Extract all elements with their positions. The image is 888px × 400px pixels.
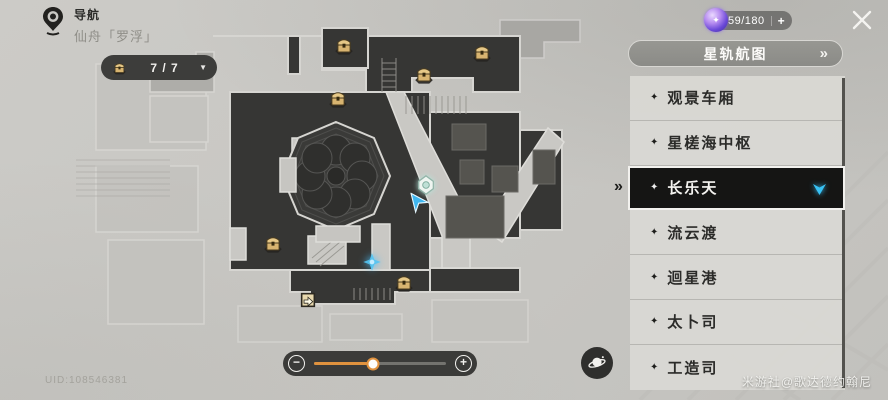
zoom-in-button[interactable]: + — [455, 355, 472, 372]
area-item-label: 太卜司 — [667, 311, 718, 332]
chevron-right-icon: » — [820, 45, 828, 62]
diamond-bullet-icon: ✦ — [650, 272, 658, 283]
selected-pointer-icon: » — [614, 178, 623, 196]
zoom-out-button[interactable]: − — [288, 355, 305, 372]
scrollbar[interactable] — [842, 78, 845, 388]
star-rail-chart-button[interactable]: 星轨航图 » — [628, 40, 843, 67]
diamond-bullet-icon: ✦ — [650, 227, 658, 238]
map-marker-chest[interactable] — [334, 35, 355, 56]
zoom-fill — [314, 362, 373, 365]
map-zoom-slider[interactable]: − + — [283, 351, 477, 376]
area-item-5[interactable]: ✦太卜司 — [630, 300, 845, 345]
chest-count: 7 / 7 — [136, 61, 193, 75]
chest-counter-dropdown[interactable]: 7 / 7 ▼ — [101, 55, 217, 80]
diamond-bullet-icon: ✦ — [650, 362, 658, 373]
trailblaze-power-value: 59/180 — [728, 15, 765, 27]
nav-label: 导航 — [74, 6, 158, 23]
zoom-knob[interactable] — [367, 357, 380, 370]
add-power-button[interactable]: + — [778, 14, 785, 28]
zoom-track[interactable] — [314, 362, 446, 365]
area-list-panel: ✦观景车厢✦星槎海中枢✦长乐天»✦流云渡✦迴星港✦太卜司✦工造司 — [630, 76, 845, 390]
location-header: 导航 仙舟「罗浮」 — [42, 6, 158, 45]
diamond-bullet-icon: ✦ — [650, 182, 658, 193]
map-marker-chest[interactable] — [414, 64, 435, 85]
map-marker-exit[interactable] — [299, 291, 318, 310]
area-list: ✦观景车厢✦星槎海中枢✦长乐天»✦流云渡✦迴星港✦太卜司✦工造司 — [630, 76, 845, 390]
current-location-icon — [812, 183, 827, 196]
diamond-bullet-icon: ✦ — [650, 92, 658, 103]
area-item-label: 工造司 — [667, 357, 718, 378]
map-marker-special[interactable] — [363, 253, 382, 272]
star-rail-chart-label: 星轨航图 — [704, 44, 768, 64]
area-item-3[interactable]: ✦流云渡 — [630, 210, 845, 255]
location-pin-icon — [42, 6, 64, 36]
close-icon — [851, 9, 873, 31]
area-item-1[interactable]: ✦星槎海中枢 — [630, 121, 845, 166]
area-item-2[interactable]: ✦长乐天» — [628, 166, 845, 211]
diamond-bullet-icon: ✦ — [650, 316, 658, 327]
area-item-label: 观景车厢 — [667, 87, 735, 108]
area-item-label: 长乐天 — [667, 177, 718, 198]
area-item-label: 流云渡 — [667, 222, 718, 243]
area-item-0[interactable]: ✦观景车厢 — [630, 76, 845, 121]
divider — [771, 16, 772, 26]
map-marker-chest[interactable] — [394, 272, 415, 293]
map-marker-chest[interactable] — [263, 233, 284, 254]
trailblaze-power-icon: ✦ — [704, 8, 728, 32]
region-name: 仙舟「罗浮」 — [74, 26, 158, 45]
area-item-label: 星槎海中枢 — [667, 132, 752, 153]
map-marker-chest[interactable] — [328, 88, 349, 109]
planet-icon — [587, 353, 607, 373]
area-item-label: 迴星港 — [667, 267, 718, 288]
interastral-map-button[interactable] — [581, 347, 613, 379]
trailblaze-power-pill[interactable]: ✦ 59/180 + — [706, 11, 792, 30]
diamond-bullet-icon: ✦ — [650, 137, 658, 148]
area-item-4[interactable]: ✦迴星港 — [630, 255, 845, 300]
watermark: 米游社@歌达德约翰尼 — [742, 373, 872, 390]
close-button[interactable] — [847, 5, 877, 35]
map-marker-chest[interactable] — [472, 42, 493, 63]
chest-icon — [111, 60, 128, 75]
uid-label: UID:108546381 — [45, 375, 128, 386]
chevron-down-icon: ▼ — [199, 63, 207, 72]
